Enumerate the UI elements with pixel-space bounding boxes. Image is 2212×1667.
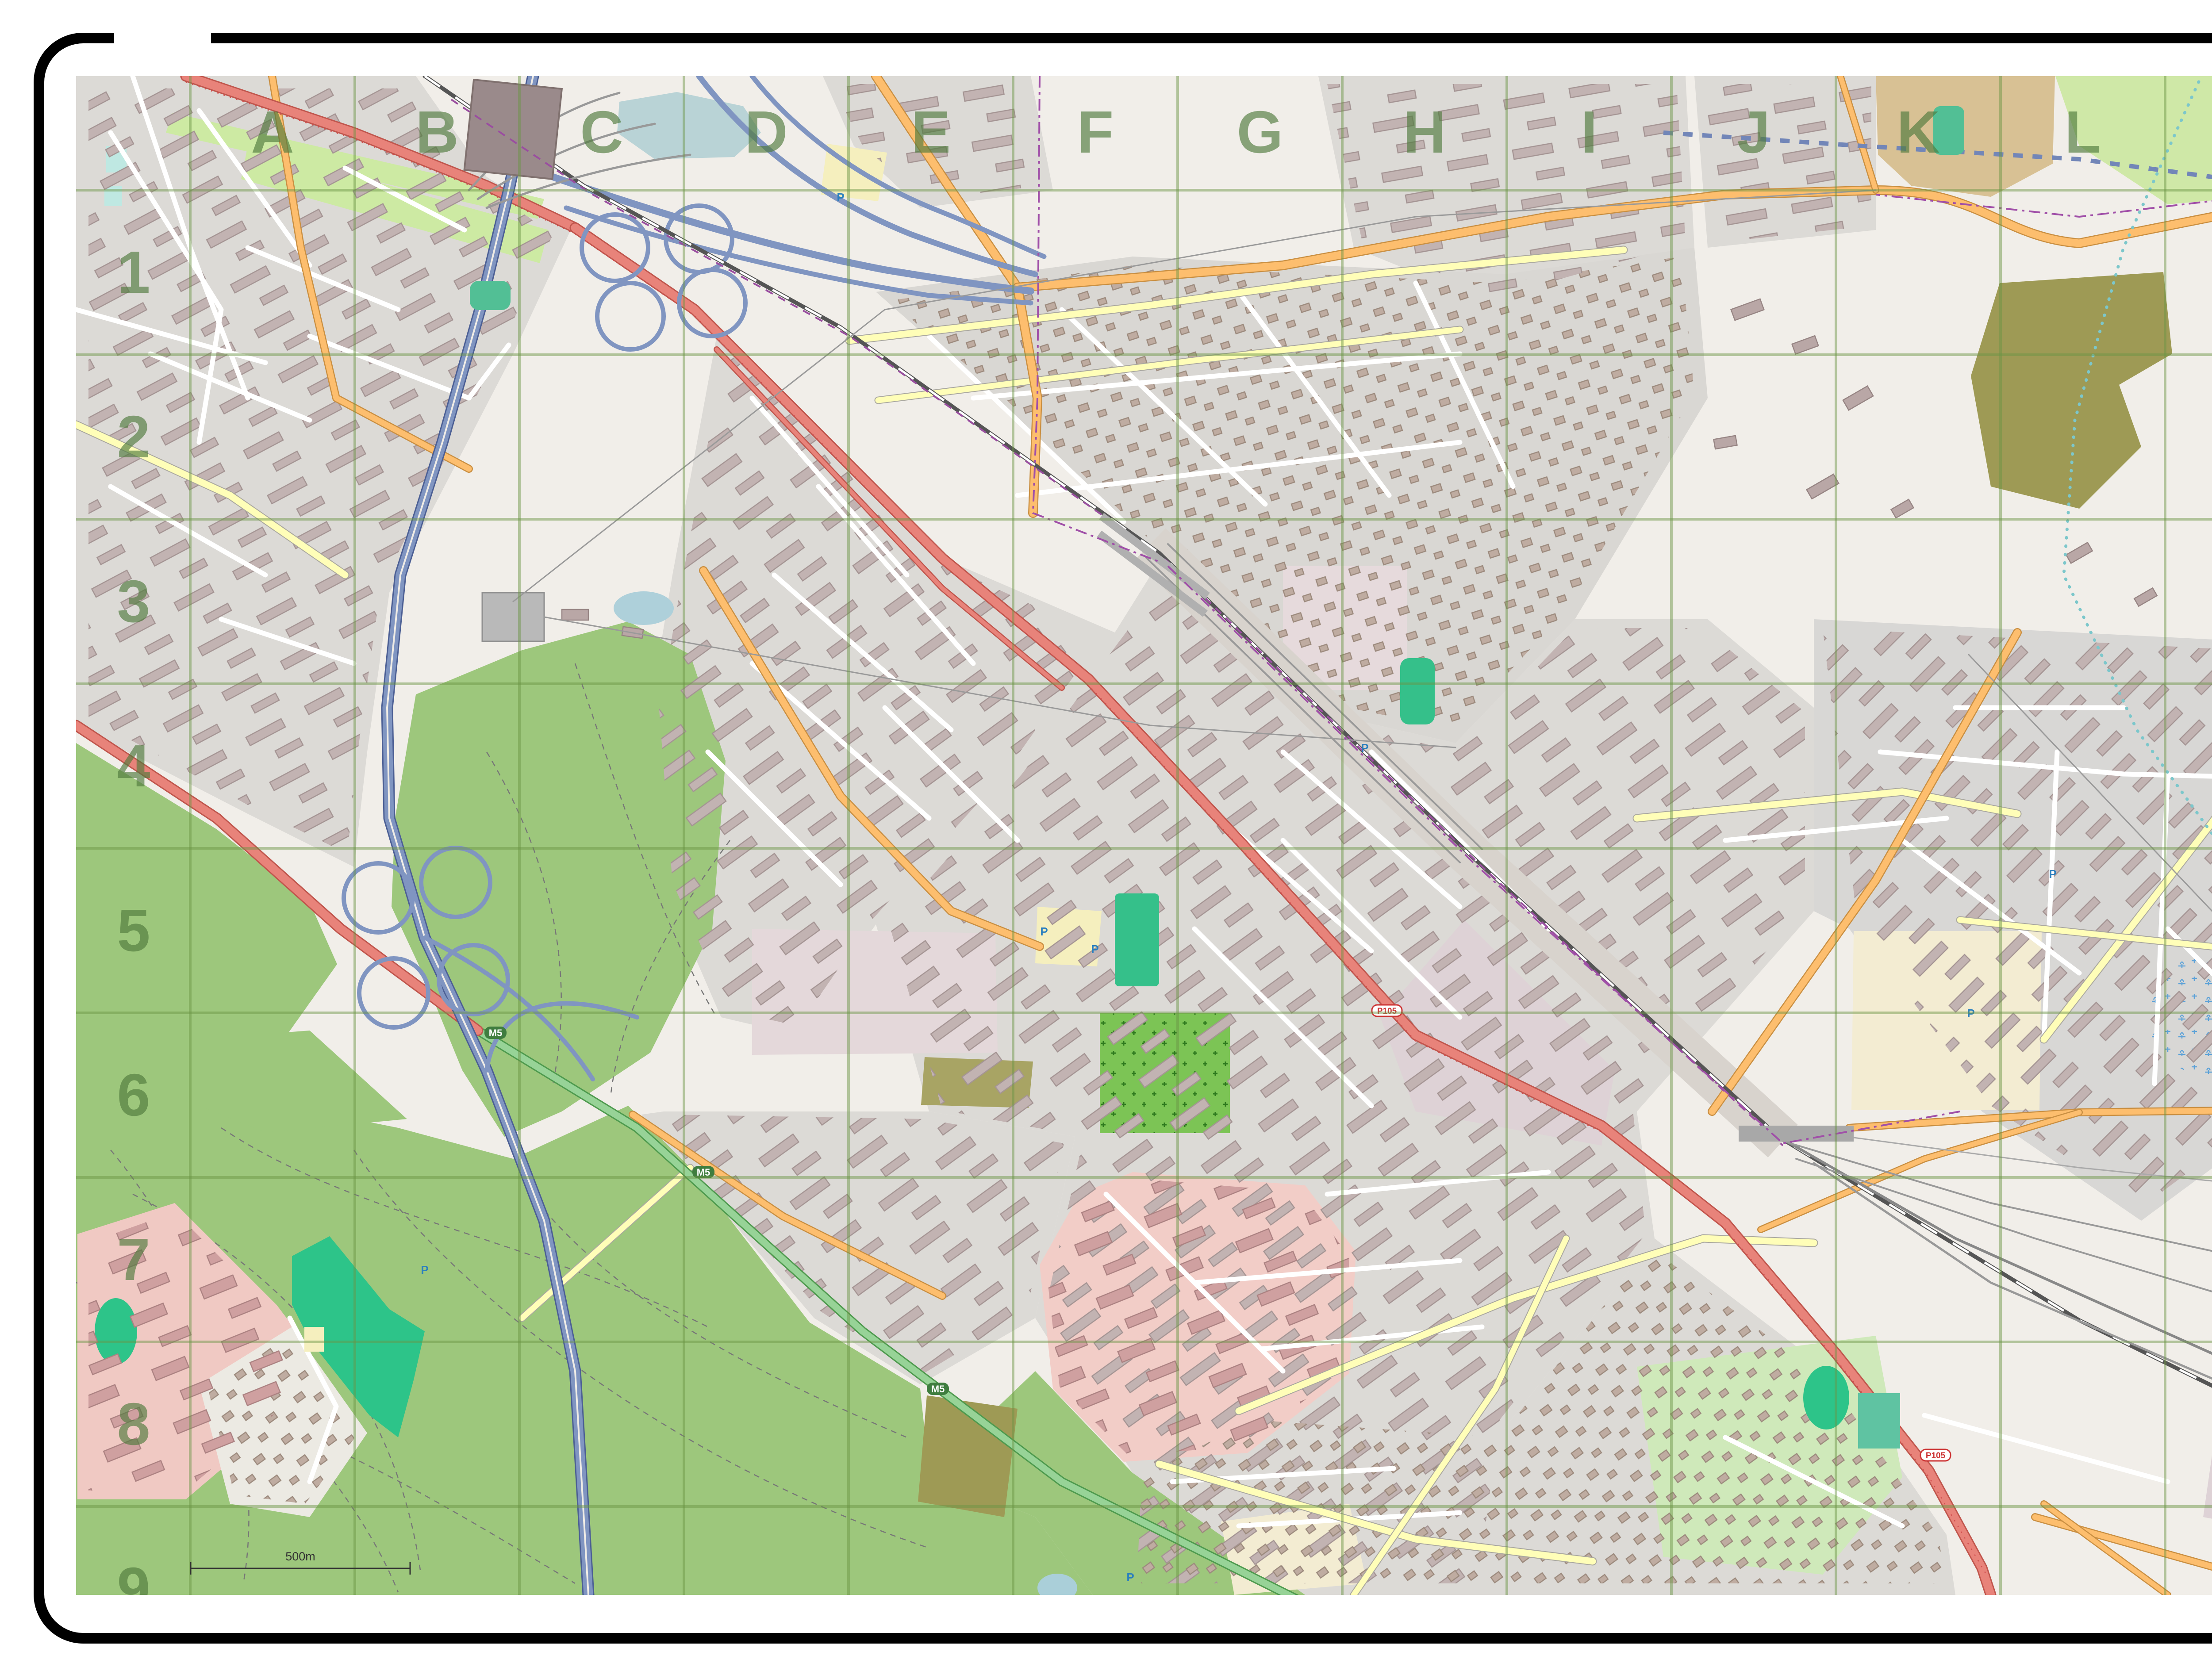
svg-text:P: P xyxy=(1126,1571,1134,1584)
svg-text:P: P xyxy=(837,191,844,204)
svg-text:M5: M5 xyxy=(931,1383,945,1395)
svg-text:B: B xyxy=(415,99,459,165)
svg-text:500m: 500m xyxy=(285,1550,315,1563)
svg-text:4: 4 xyxy=(117,732,150,799)
svg-text:5: 5 xyxy=(117,897,150,964)
svg-text:2: 2 xyxy=(117,403,150,470)
svg-text:P: P xyxy=(421,1263,428,1276)
svg-text:6: 6 xyxy=(117,1062,150,1128)
svg-text:8: 8 xyxy=(117,1391,150,1457)
svg-text:C: C xyxy=(580,99,623,165)
svg-text:E: E xyxy=(911,99,951,165)
svg-text:J: J xyxy=(1737,99,1770,165)
svg-text:F: F xyxy=(1077,99,1114,165)
svg-text:P: P xyxy=(1361,741,1368,755)
svg-text:1: 1 xyxy=(117,239,150,306)
svg-text:P: P xyxy=(1040,925,1048,938)
svg-text:3: 3 xyxy=(117,568,150,635)
svg-text:7: 7 xyxy=(117,1226,150,1293)
svg-text:K: K xyxy=(1897,99,1940,165)
svg-text:D: D xyxy=(745,99,788,165)
svg-text:H: H xyxy=(1403,99,1446,165)
svg-text:P: P xyxy=(1091,943,1098,956)
svg-text:M5: M5 xyxy=(489,1027,503,1039)
svg-text:G: G xyxy=(1237,99,1283,165)
svg-text:L: L xyxy=(2065,99,2101,165)
svg-text:A: A xyxy=(251,99,294,165)
svg-text:P105: P105 xyxy=(1377,1007,1397,1016)
svg-text:P: P xyxy=(2049,867,2056,881)
svg-text:P105: P105 xyxy=(1926,1451,1946,1460)
svg-text:I: I xyxy=(1581,99,1598,165)
